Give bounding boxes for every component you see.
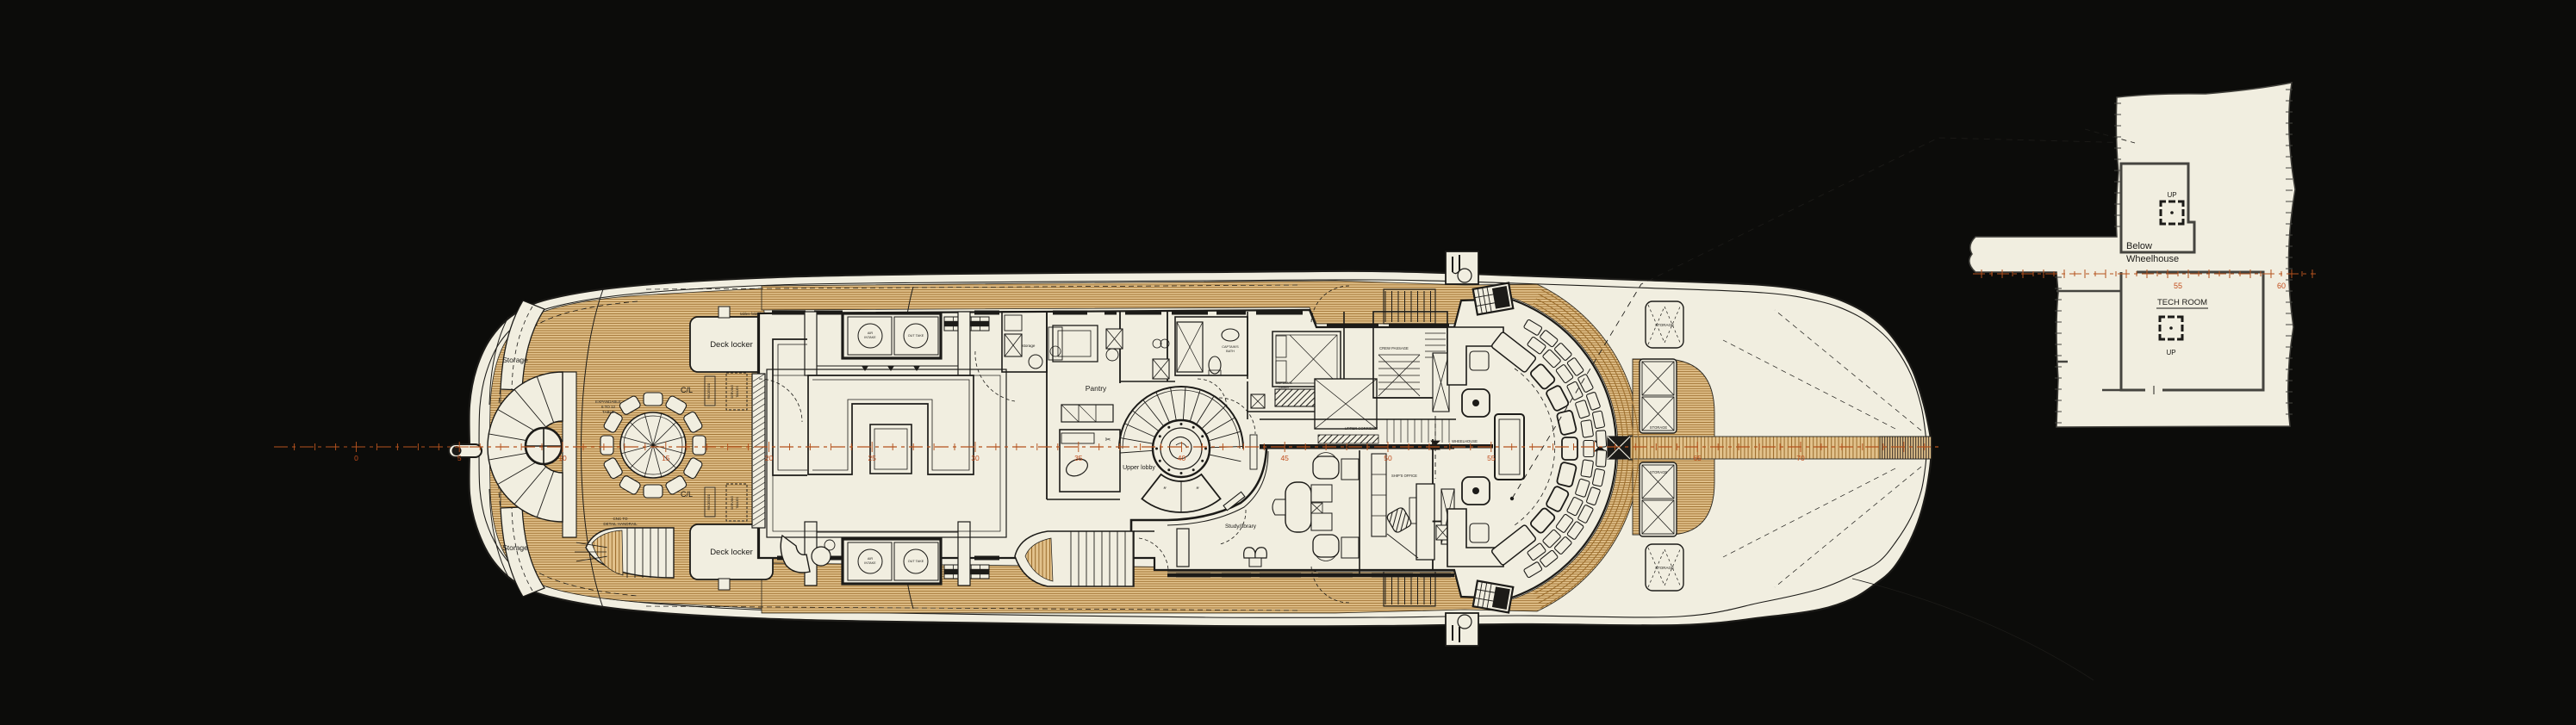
svg-text:CAPTAIN'S: CAPTAIN'S <box>1275 381 1292 385</box>
svg-text:0: 0 <box>354 454 358 462</box>
svg-text:C/L: C/L <box>681 490 693 499</box>
svg-text:RECESSED: RECESSED <box>707 382 711 399</box>
svg-text:Below: Below <box>2126 241 2152 251</box>
svg-text:UPPER CORRIDOR: UPPER CORRIDOR <box>1345 426 1378 431</box>
svg-text:15: 15 <box>662 454 670 462</box>
svg-text:′′: ′′ <box>1196 486 1199 494</box>
svg-text:30: 30 <box>971 454 980 462</box>
svg-text:′′: ′′ <box>1163 486 1167 494</box>
svg-text:55: 55 <box>2174 282 2182 290</box>
svg-text:Storage: Storage <box>502 356 528 364</box>
svg-text:TABLE: TABLE <box>602 410 614 414</box>
svg-text:TABLES: TABLES <box>736 497 739 509</box>
svg-text:OUT TAKE: OUT TAKE <box>908 560 924 563</box>
svg-text:STORAGE: STORAGE <box>1650 470 1668 474</box>
svg-text:25: 25 <box>868 454 876 462</box>
svg-text:TABLES: TABLES <box>736 386 739 398</box>
svg-text:TECH ROOM: TECH ROOM <box>2157 298 2207 307</box>
svg-text:Study/library: Study/library <box>1225 524 1257 530</box>
svg-text:AIR: AIR <box>868 332 874 335</box>
svg-text:Wheelhouse: Wheelhouse <box>2126 254 2179 264</box>
svg-text:SERVING: SERVING <box>731 496 734 510</box>
svg-text:60: 60 <box>2277 282 2286 290</box>
svg-text:Deck locker: Deck locker <box>710 548 753 557</box>
svg-text:10: 10 <box>558 454 567 462</box>
svg-text:6 TO 12: 6 TO 12 <box>601 405 616 409</box>
svg-text:STORAGE: STORAGE <box>1655 566 1674 570</box>
svg-text:UP: UP <box>2167 191 2176 199</box>
svg-text:Pantry: Pantry <box>1086 384 1107 393</box>
svg-text:70: 70 <box>1796 454 1805 462</box>
svg-text:EXPANDABLE: EXPANDABLE <box>595 400 621 404</box>
svg-text:35: 35 <box>1074 454 1083 462</box>
svg-text:C/L: C/L <box>681 386 693 394</box>
svg-text:Deck locker: Deck locker <box>710 340 753 350</box>
svg-text:55: 55 <box>1487 454 1496 462</box>
svg-text:45: 45 <box>1280 454 1289 462</box>
svg-text:CNC TO: CNC TO <box>613 517 628 521</box>
svg-text:SERVING: SERVING <box>731 385 734 399</box>
svg-text:5: 5 <box>457 454 462 462</box>
svg-text:Storage: Storage <box>502 543 528 552</box>
svg-text:CREW PASSAGE: CREW PASSAGE <box>1379 346 1409 350</box>
svg-text:INTAKE: INTAKE <box>864 336 876 339</box>
svg-text:CAPTAIN'S: CAPTAIN'S <box>1222 345 1239 349</box>
svg-text:AIR: AIR <box>868 557 874 561</box>
svg-text:✂: ✂ <box>1105 436 1111 443</box>
svg-text:CABIN: CABIN <box>1279 386 1289 389</box>
svg-text:STORAGE: STORAGE <box>1650 425 1668 430</box>
svg-text:40: 40 <box>1178 454 1186 462</box>
svg-text:UP: UP <box>2166 349 2175 356</box>
svg-text:20: 20 <box>765 454 774 462</box>
svg-text:INTAKE: INTAKE <box>864 561 876 565</box>
svg-text:SHIP'S OFFICE: SHIP'S OFFICE <box>1391 474 1417 478</box>
svg-text:WHEELHOUSE: WHEELHOUSE <box>1452 439 1478 443</box>
svg-text:BATH: BATH <box>1226 350 1235 353</box>
svg-text:STORAGE: STORAGE <box>1655 323 1674 327</box>
svg-text:65: 65 <box>1693 454 1702 462</box>
svg-text:50: 50 <box>1384 454 1392 462</box>
svg-text:OUT TAKE: OUT TAKE <box>908 334 924 338</box>
svg-text:RECESSED: RECESSED <box>707 493 711 510</box>
svg-text:Upper lobby: Upper lobby <box>1123 465 1155 471</box>
svg-text:DETAIL HANDRAIL: DETAIL HANDRAIL <box>603 522 638 526</box>
